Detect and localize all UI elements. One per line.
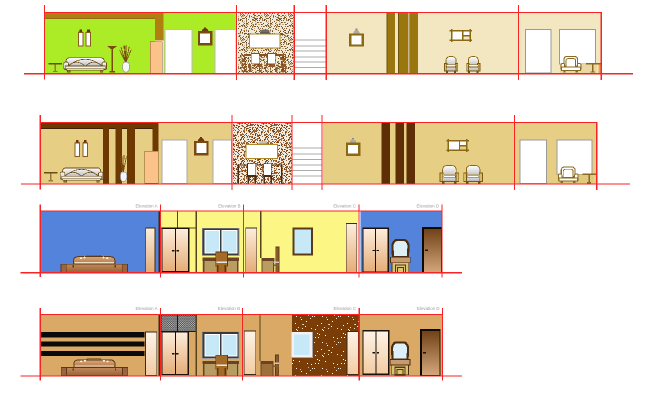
svg-text:Elevation B: Elevation B [218,306,240,311]
svg-text:Elevation C: Elevation C [333,203,355,208]
svg-text:Elevation D: Elevation D [417,203,439,208]
svg-text:Elevation A: Elevation A [136,203,158,208]
svg-text:Elevation C: Elevation C [334,306,356,311]
svg-text:Elevation B: Elevation B [218,203,240,208]
svg-text:Elevation D: Elevation D [417,306,439,311]
svg-text:Elevation A: Elevation A [136,306,158,311]
